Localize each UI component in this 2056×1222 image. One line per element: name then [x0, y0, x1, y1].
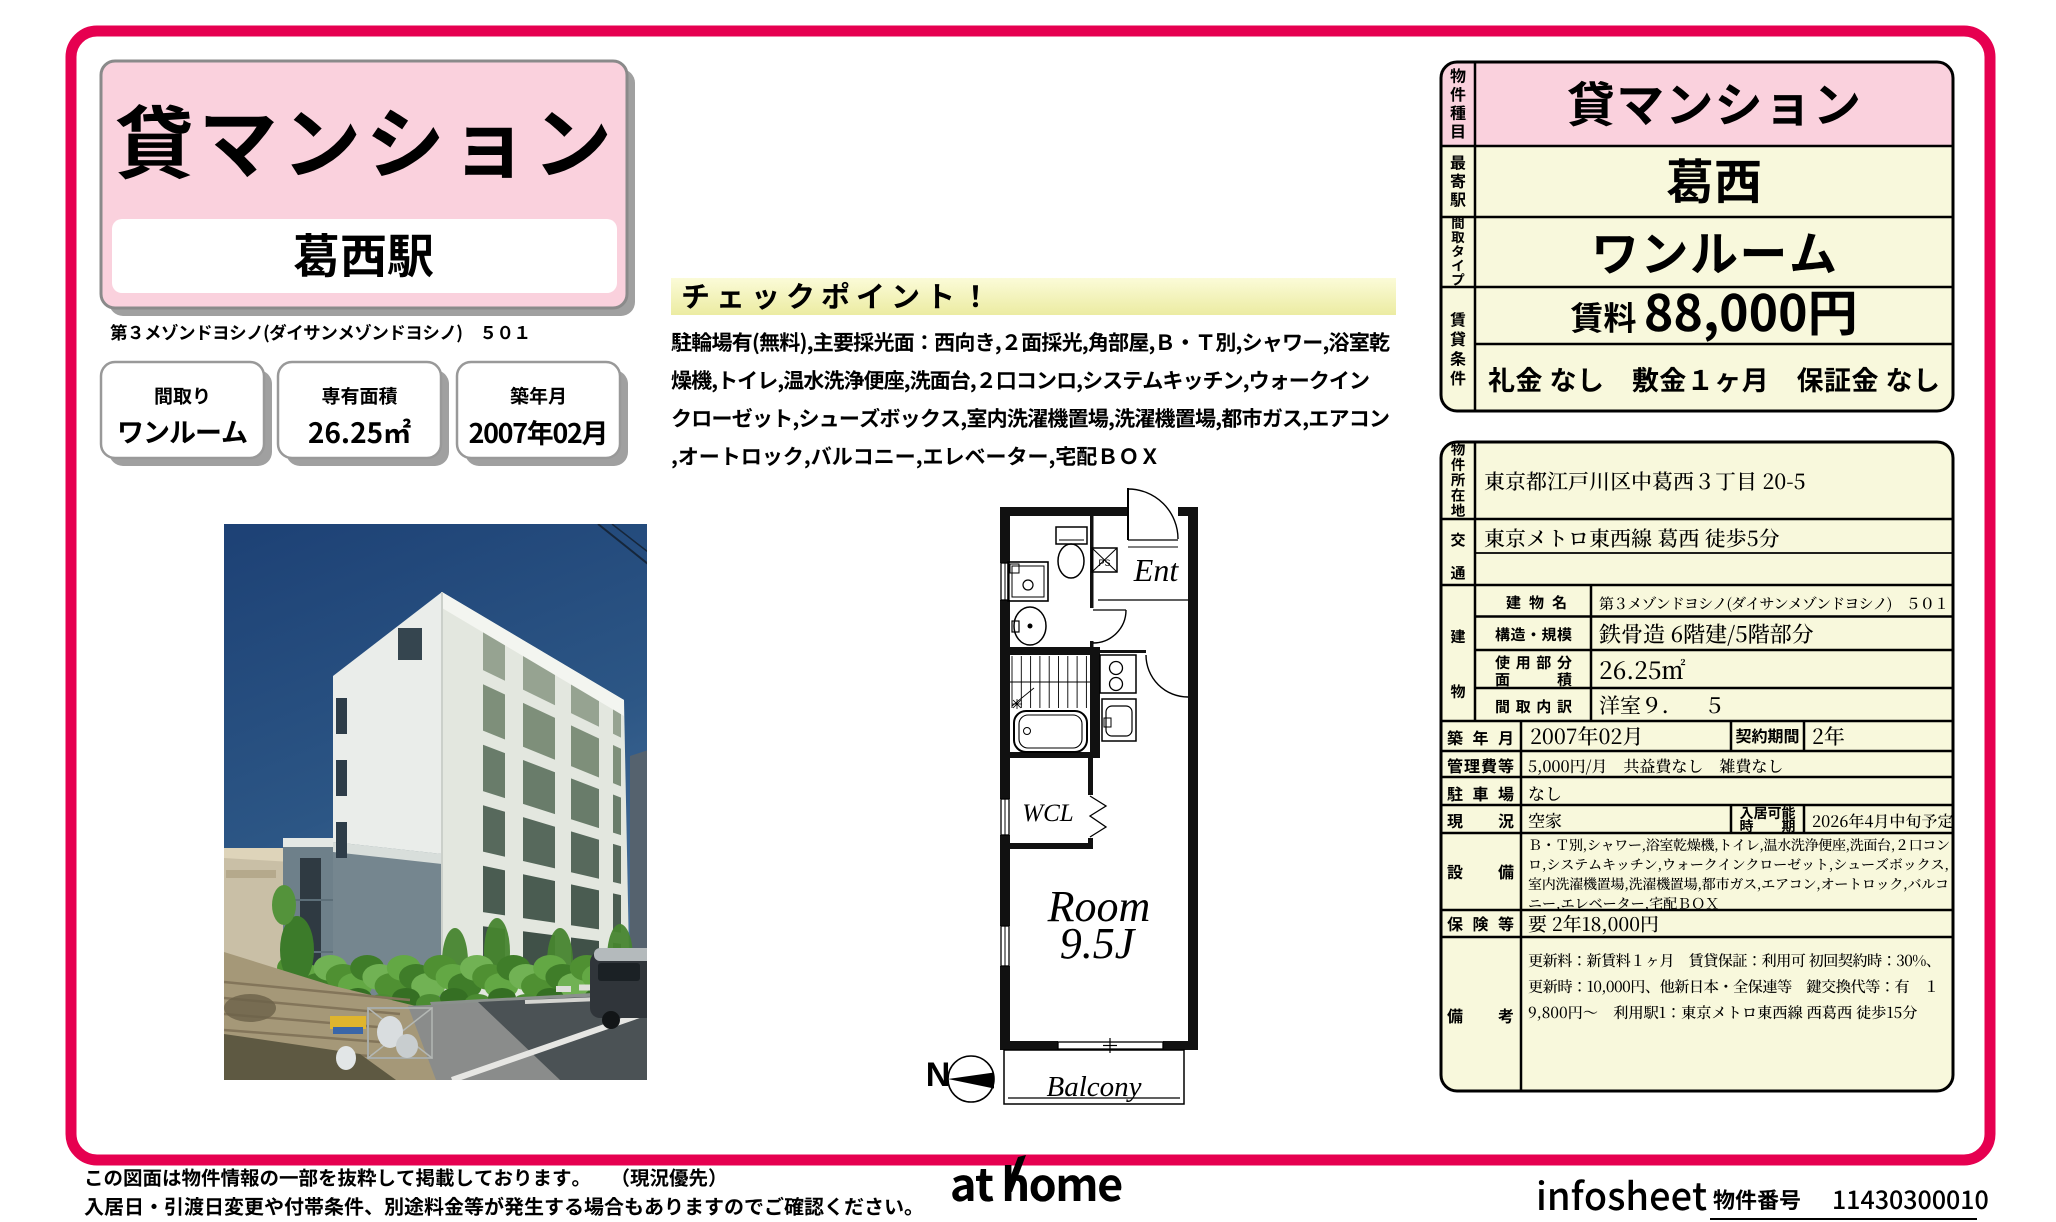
svg-text:WCL: WCL [1022, 800, 1073, 827]
svg-text:Balcony: Balcony [1046, 1071, 1141, 1103]
svg-text:Ent: Ent [1133, 552, 1180, 588]
svg-text:N: N [926, 1056, 951, 1094]
svg-text:PS: PS [1098, 558, 1110, 568]
svg-text:9.5J: 9.5J [1060, 919, 1137, 968]
